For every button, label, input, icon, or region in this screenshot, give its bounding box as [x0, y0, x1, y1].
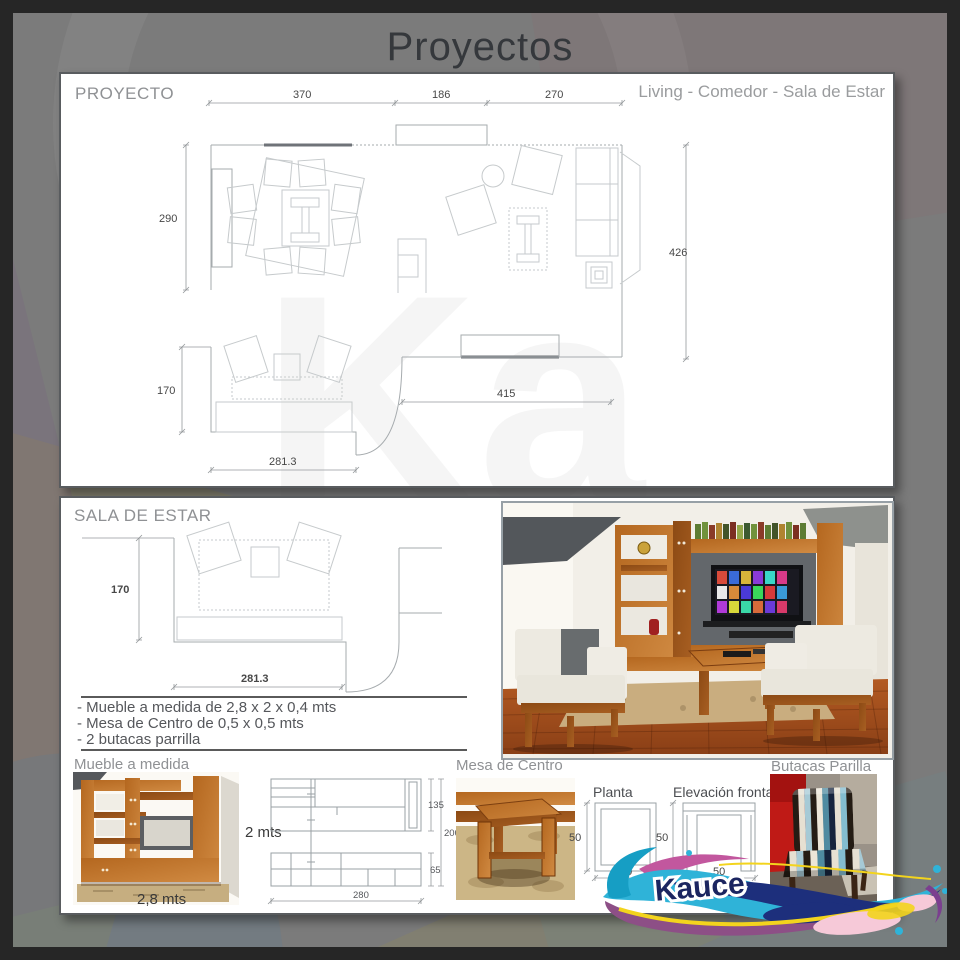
svg-text:170: 170	[157, 385, 175, 397]
svg-text:281.3: 281.3	[269, 456, 297, 468]
proyecto-panel: PROYECTO Living - Comedor - Sala de Esta…	[59, 72, 895, 488]
svg-text:370: 370	[293, 89, 311, 101]
render-living-room	[501, 501, 894, 760]
spec-list: - Mueble a medida de 2,8 x 2 x 0,4 mts -…	[77, 700, 336, 748]
tv-screen	[715, 569, 799, 615]
butacas-label: Butacas Parilla	[771, 758, 871, 775]
render-mueble	[73, 772, 239, 905]
spec-item: - 2 butacas parrilla	[77, 732, 336, 748]
svg-text:135: 135	[428, 800, 444, 811]
svg-text:170: 170	[111, 584, 129, 596]
svg-text:415: 415	[497, 388, 515, 400]
spec-item: - Mueble a medida de 2,8 x 2 x 0,4 mts	[77, 700, 336, 716]
svg-text:426: 426	[669, 247, 687, 259]
svg-text:270: 270	[545, 89, 563, 101]
mueble-width-dim: 2,8 mts	[137, 891, 186, 908]
svg-text:50: 50	[569, 832, 581, 844]
sala-sofa	[177, 522, 342, 640]
floorplan-sala: 170 281.3	[61, 498, 481, 698]
sala-walls	[174, 538, 442, 692]
svg-text:281.3: 281.3	[241, 673, 269, 685]
svg-text:290: 290	[159, 213, 177, 225]
mesa-label: Mesa de Centro	[456, 757, 563, 774]
page-title: Proyectos	[13, 25, 947, 70]
separator-bottom	[81, 749, 467, 751]
render-mesa	[456, 778, 575, 900]
mueble-elevation-drawing: 135 200 65 280	[265, 774, 457, 910]
page-background: Proyectos PROYECTO Living - Comedor - Sa…	[13, 13, 947, 947]
separator-top	[81, 696, 467, 698]
kauce-logo: Kauce Kauce	[599, 839, 947, 947]
svg-text:186: 186	[432, 89, 450, 101]
svg-text:65: 65	[430, 865, 441, 876]
mueble-label: Mueble a medida	[74, 756, 189, 773]
floorplan-proyecto: Ka 370 186 270 290 426 170 415 281.3	[61, 74, 893, 486]
spec-item: - Mesa de Centro de 0,5 x 0,5 mts	[77, 716, 336, 732]
sala-dims: 170 281.3	[82, 535, 345, 690]
armchair-left	[513, 629, 633, 754]
svg-text:280: 280	[353, 890, 369, 901]
